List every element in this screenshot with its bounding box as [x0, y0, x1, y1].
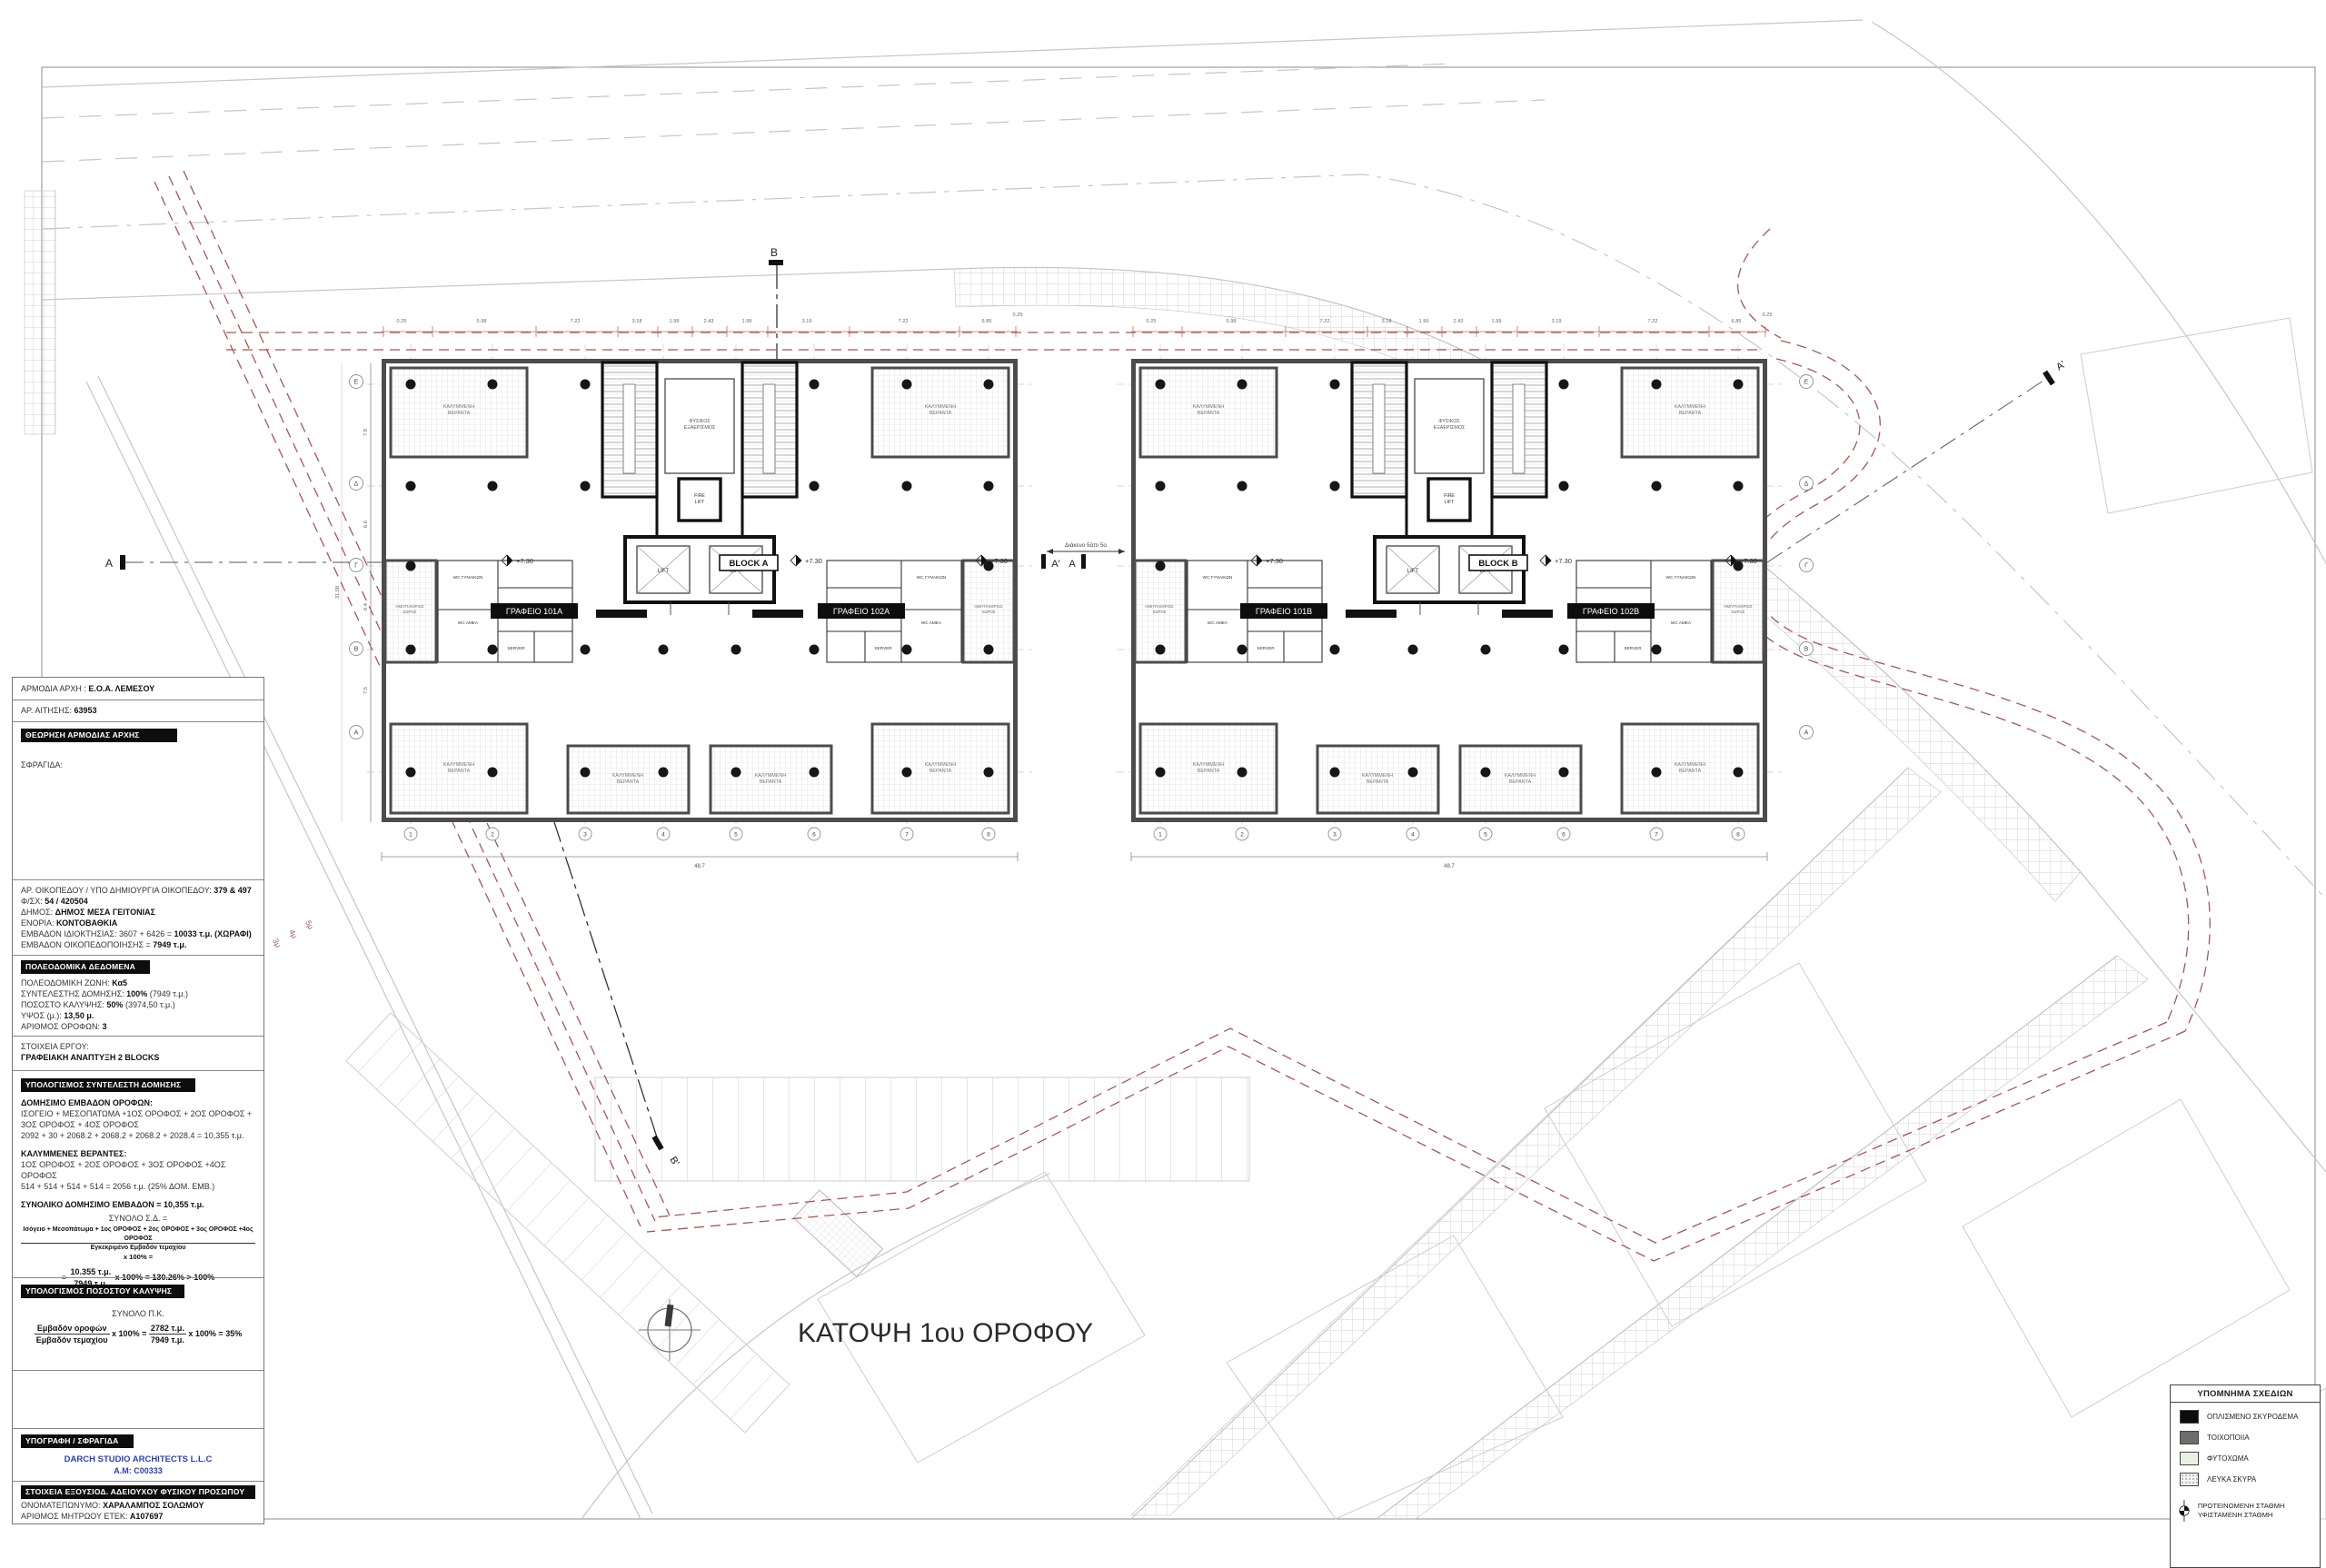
grid-letter-bubbles-right: Ε Δ Γ Β Α — [1800, 375, 1814, 739]
authority-label: ΑΡΜΟΔΙΑ ΑΡΧΗ : — [21, 684, 86, 693]
signature-header: ΥΠΟΓΡΑΦΗ / ΣΦΡΑΓΙΔΑ — [21, 1434, 134, 1448]
firm-name: DARCH STUDIO ARCHITECTS L.L.C — [21, 1454, 255, 1465]
project-info: ΣΤΟΙΧΕΙΑ ΕΡΓΟΥ: ΓΡΑΦΕΙΑΚΗ ΑΝΑΠΤΥΞΗ 2 BLO… — [13, 1041, 263, 1063]
legend-item-levels: ΠΡΟΤΕΙΝΟΜΕΝΗ ΣΤΑΘΜΗ ΥΦΙΣΤΑΜΕΝΗ ΣΤΑΘΜΗ — [2176, 1495, 2320, 1526]
legend-item-masonry: ΤΟΙΧΟΠΟΙΙΑ — [2180, 1431, 2320, 1444]
coverage-header: ΥΠΟΛΟΓΙΣΜΟΣ ΠΟΣΟΣΤΟΥ ΚΑΛΥΨΗΣ — [21, 1285, 184, 1298]
block-b — [1117, 313, 1782, 869]
svg-text:Α: Α — [354, 730, 359, 737]
stamp-label: ΣΦΡΑΓΙΔΑ: — [21, 760, 63, 769]
licensee-header: ΣΤΟΙΧΕΙΑ ΕΞΟΥΣΙΟΔ. ΑΔΕΙΟΥΧΟΥ ΦΥΣΙΚΟΥ ΠΡΟ… — [21, 1485, 255, 1499]
drawing-sheet: { "panel": { "authority": {"label": "ΑΡΜ… — [0, 0, 2326, 1530]
grid-letter-bubbles-left: Ε Δ Γ Β Α 7.8 6.6 6.4 7.5 31.08 — [335, 363, 371, 822]
block-a — [367, 313, 1032, 869]
site-info: ΑΡ. ΟΙΚΟΠΕΔΟΥ / ΥΠΟ ΔΗΜΙΟΥΡΓΙΑ ΟΙΚΟΠΕΔΟΥ… — [13, 885, 263, 950]
block-name: BLOCK B — [1478, 559, 1517, 569]
zoning-info: ΠΟΛΕΟΔΟΜΙΚΗ ΖΩΝΗ: Κα5 ΣΥΝΤΕΛΕΣΤΗΣ ΔΟΜΗΣΗ… — [13, 978, 263, 1032]
svg-text:+7.30: +7.30 — [516, 557, 533, 565]
review-header: ΘΕΩΡΗΣΗ ΑΡΜΟΔΙΑΣ ΑΡΧΗΣ — [21, 729, 177, 742]
legend-title: ΥΠΟΜΝΗΜΑ ΣΧΕΔΙΩΝ — [2171, 1385, 2320, 1403]
legend-item-topsoil: ΦΥΤΟΧΩΜΑ — [2180, 1452, 2320, 1465]
far-header: ΥΠΟΛΟΓΙΣΜΟΣ ΣΥΝΤΕΛΕΣΤΗ ΔΟΜΗΣΗΣ — [21, 1078, 195, 1092]
svg-text:Β: Β — [354, 647, 359, 653]
svg-text:+7.30: +7.30 — [990, 557, 1008, 565]
level-symbol — [2176, 1495, 2192, 1526]
legend-item-gravel: ΛΕΥΚΑ ΣΚΥΡΑ — [2180, 1473, 2320, 1486]
floor-plan-drawing: ΚΑΛΥΜΜΕΝΗ ΒΕΡΑΝΤΑ ΚΑΛΥΜΜΕΝΗ ΒΕΡΑΝΤΑ ΚΑΛΥ… — [0, 0, 2326, 1530]
office-label: ΓΡΑΦΕΙΟ 102Β — [1583, 607, 1639, 616]
external-stair — [793, 1190, 882, 1277]
office-label: ΓΡΑΦΕΙΟ 102Α — [833, 607, 890, 616]
block-name: BLOCK A — [730, 559, 769, 569]
svg-text:A: A — [1069, 559, 1076, 570]
legend: ΥΠΟΜΝΗΜΑ ΣΧΕΔΙΩΝ ΟΠΛΙΣΜΕΝΟ ΣΚΥΡΟΔΕΜΑ ΤΟΙ… — [2170, 1384, 2321, 1568]
authority-value: Ε.Ο.Α. ΛΕΜΕΣΟΥ — [88, 684, 154, 693]
setback-labels: 3μ 4μ 5μ — [271, 918, 315, 948]
svg-text:4μ: 4μ — [287, 928, 299, 939]
svg-text:6.4: 6.4 — [363, 602, 369, 610]
masonry-swatch — [2180, 1431, 2199, 1444]
svg-text:+7.30: +7.30 — [1266, 557, 1283, 565]
authority-row: ΑΡΜΟΔΙΑ ΑΡΧΗ : Ε.Ο.Α. ΛΕΜΕΣΟΥ — [13, 683, 263, 694]
firm-registration: A.M: C00333 — [21, 1465, 255, 1476]
svg-text:3μ: 3μ — [271, 937, 283, 948]
svg-text:Δ: Δ — [354, 481, 359, 488]
svg-text:Ε: Ε — [354, 380, 359, 386]
svg-text:+7.30: +7.30 — [1740, 557, 1757, 565]
drawing-title: ΚΑΤΟΨΗ 1ου ΟΡΟΦΟΥ — [798, 1318, 1093, 1348]
svg-text:Γ: Γ — [1804, 563, 1808, 570]
title-block-panel: ΑΡΜΟΔΙΑ ΑΡΧΗ : Ε.Ο.Α. ΛΕΜΕΣΟΥ ΑΡ. ΑΙΤΗΣΗ… — [12, 677, 264, 1524]
svg-text:6.6: 6.6 — [363, 521, 369, 528]
section-marker-a: A — [105, 557, 113, 570]
office-label: ΓΡΑΦΕΙΟ 101Α — [506, 607, 562, 616]
svg-text:Δ: Δ — [1804, 481, 1809, 488]
topsoil-swatch — [2180, 1452, 2199, 1465]
architect-firm: DARCH STUDIO ARCHITECTS L.L.C A.M: C0033… — [13, 1454, 263, 1476]
svg-text:A': A' — [1051, 559, 1059, 570]
zoning-header: ΠΟΛΕΟΔΟΜΙΚΑ ΔΕΔΟΜΕΝΑ — [21, 960, 150, 974]
svg-text:A': A' — [2054, 359, 2067, 372]
office-label: ΓΡΑΦΕΙΟ 101Β — [1256, 607, 1312, 616]
svg-text:+7.30: +7.30 — [1555, 557, 1572, 565]
gravel-swatch — [2180, 1473, 2199, 1486]
svg-text:Β: Β — [1804, 647, 1809, 653]
svg-text:Α: Α — [1804, 730, 1809, 737]
section-marker-b: B — [770, 246, 778, 259]
svg-text:7.5: 7.5 — [363, 687, 369, 694]
coverage-calculation: ΣΥΝΟΛΟ Π.Κ. Εμβαδόν οροφών Εμβαδόν τεμαχ… — [13, 1308, 263, 1345]
far-calculation: ΔΟΜΗΣΙΜΟ ΕΜΒΑΔΟΝ ΟΡΟΦΩΝ: ΙΣΟΓΕΙΟ + ΜΕΣΟΠ… — [13, 1097, 263, 1289]
svg-text:Ε: Ε — [1804, 380, 1809, 386]
dim-total-height: 31.08 — [335, 586, 341, 600]
gap-annotation: Διάκενο 5άπι 5ο — [1065, 541, 1107, 549]
concrete-swatch — [2180, 1410, 2199, 1424]
svg-text:Γ: Γ — [354, 563, 358, 570]
application-row: ΑΡ. ΑΙΤΗΣΗΣ: 63953 — [13, 705, 263, 716]
svg-text:+7.30: +7.30 — [805, 557, 822, 565]
svg-text:5μ: 5μ — [303, 918, 315, 930]
legend-item-concrete: ΟΠΛΙΣΜΕΝΟ ΣΚΥΡΟΔΕΜΑ — [2180, 1410, 2320, 1424]
licensee-info: ΟΝΟΜΑΤΕΠΩΝΥΜΟ: ΧΑΡΑΛΑΜΠΟΣ ΣΟΛΩΜΟΥ ΑΡΙΘΜΟ… — [13, 1500, 263, 1522]
svg-text:7.8: 7.8 — [363, 429, 369, 436]
